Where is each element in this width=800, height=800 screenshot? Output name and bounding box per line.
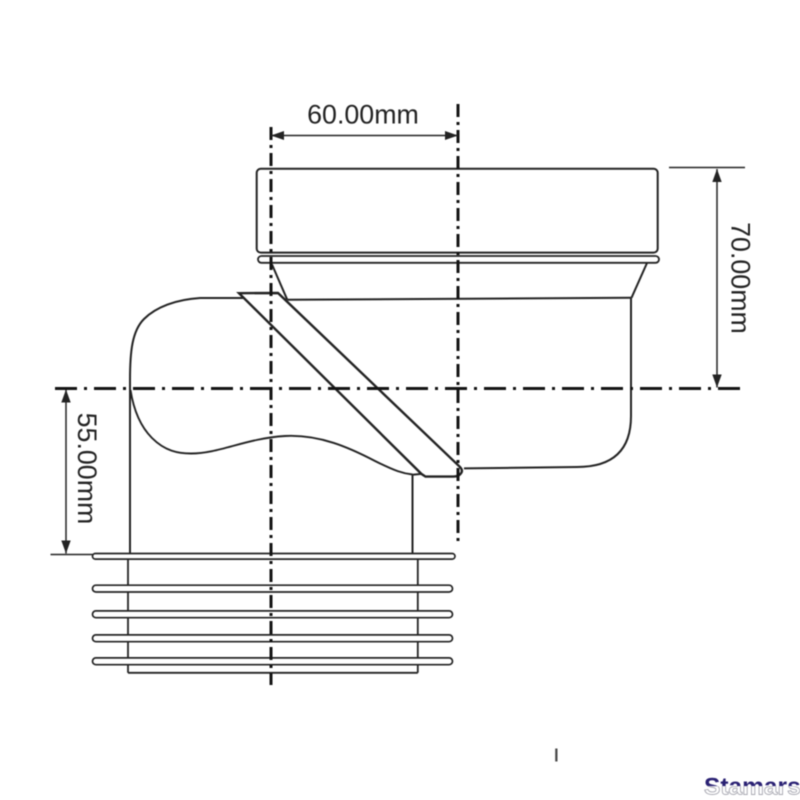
svg-text:60.00mm: 60.00mm xyxy=(307,100,419,130)
svg-text:55.00mm: 55.00mm xyxy=(72,413,102,525)
svg-text:70.00mm: 70.00mm xyxy=(726,222,756,334)
